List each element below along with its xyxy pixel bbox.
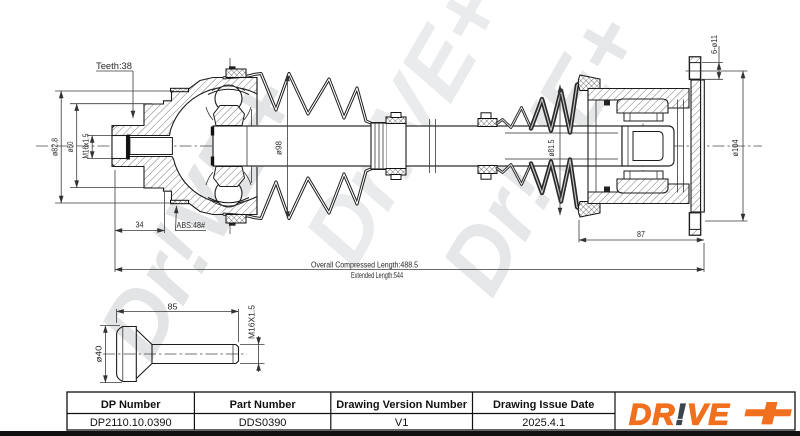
svg-text:DP2110.10.0390: DP2110.10.0390 [90, 417, 172, 429]
svg-text:DP Number: DP Number [101, 399, 161, 411]
svg-text:ø81.5: ø81.5 [546, 139, 556, 156]
svg-text:85: 85 [168, 302, 178, 312]
svg-text:ø98: ø98 [274, 141, 284, 155]
svg-text:ABS:48#: ABS:48# [177, 220, 206, 230]
svg-text:V1: V1 [395, 417, 408, 429]
svg-text:DDS0390: DDS0390 [239, 417, 287, 429]
svg-text:2025.4.1: 2025.4.1 [522, 417, 565, 429]
svg-text:M16x1.5: M16x1.5 [81, 133, 91, 158]
svg-text:ø60: ø60 [65, 141, 75, 152]
svg-text:Overall Compressed Length:488.: Overall Compressed Length:488.5 [311, 260, 418, 270]
svg-text:ø82.8: ø82.8 [50, 138, 60, 156]
svg-text:Teeth:38: Teeth:38 [96, 61, 132, 72]
svg-text:DR!VE: DR!VE [629, 399, 730, 432]
svg-text:Drawing Version Number: Drawing Version Number [336, 399, 468, 411]
svg-text:34: 34 [136, 220, 144, 230]
svg-text:Drawing Issue Date: Drawing Issue Date [493, 399, 594, 411]
svg-text:Extended Length:544: Extended Length:544 [351, 270, 403, 280]
svg-text:ø40: ø40 [94, 345, 104, 362]
svg-text:87: 87 [637, 229, 645, 239]
svg-text:6-ø11: 6-ø11 [709, 35, 719, 54]
svg-text:M16X1.5: M16X1.5 [247, 305, 257, 339]
svg-text:ø104: ø104 [730, 139, 740, 156]
svg-text:Part Number: Part Number [230, 399, 297, 411]
